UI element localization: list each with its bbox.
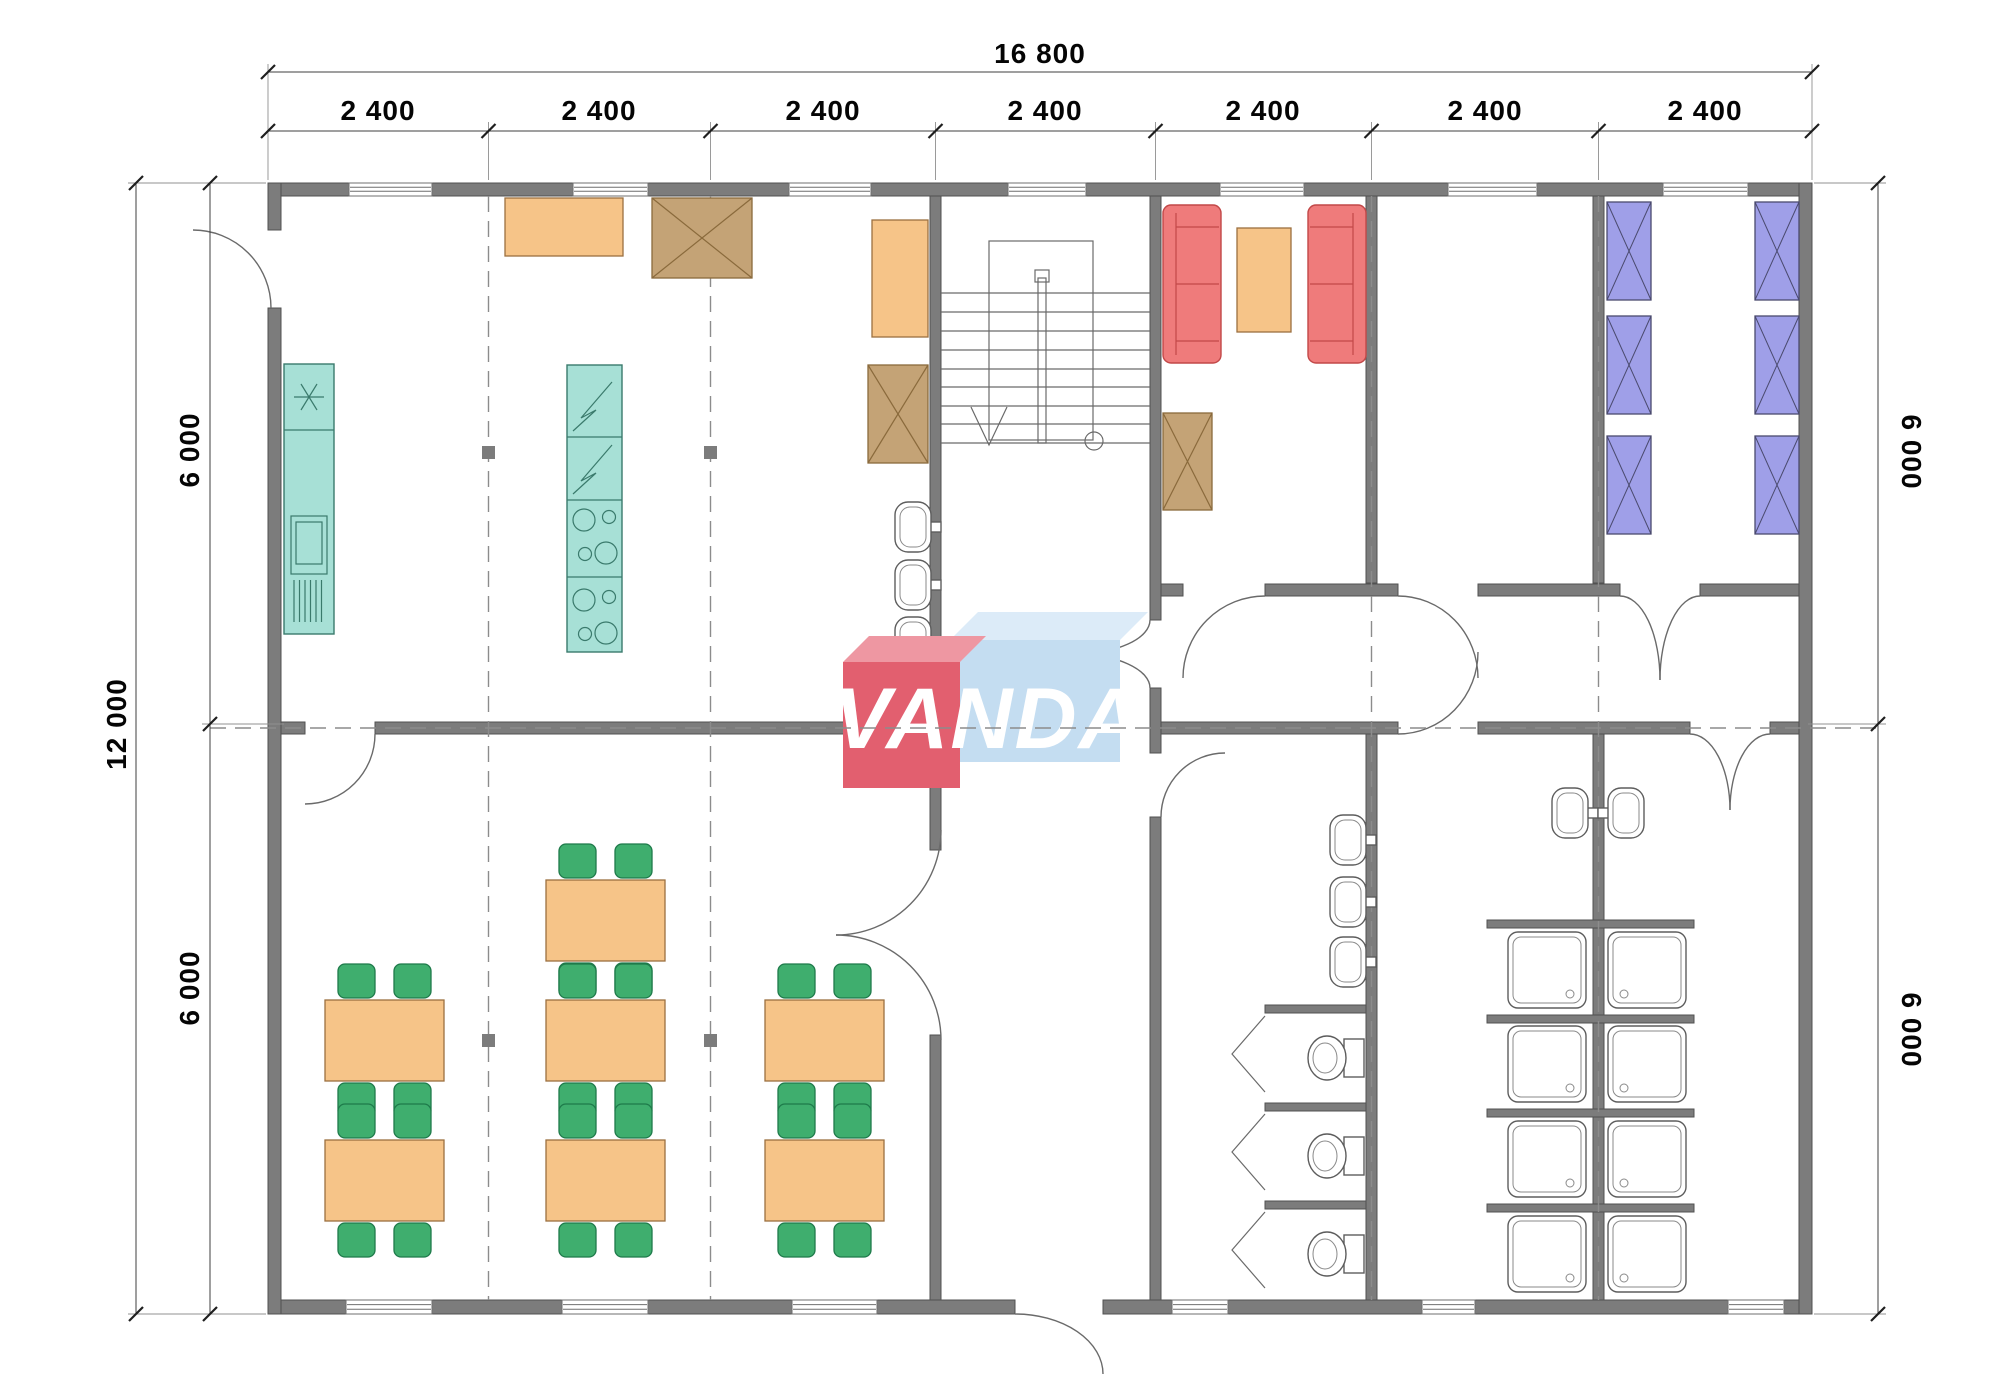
staircase [941, 241, 1150, 450]
dim-total-width: 16 800 [994, 38, 1086, 69]
shower-icon [1508, 1026, 1586, 1102]
shower-icon [1508, 932, 1586, 1008]
sofa-icon [1163, 205, 1221, 363]
dining-set-icon [325, 964, 444, 1117]
shower-icon [1608, 1026, 1686, 1102]
logo-blue-top-face [950, 612, 1148, 640]
window [1172, 1300, 1228, 1314]
dining-set-icon [546, 1104, 665, 1257]
stall-door [1232, 1016, 1265, 1092]
door-arc-lounge [1183, 596, 1265, 678]
door-arc-dining [305, 734, 375, 804]
vanda-logo: VANDA [833, 612, 1148, 788]
wardrobe-icon [652, 198, 752, 278]
dim-segment: 2 400 [561, 95, 636, 126]
dining-set-icon [546, 964, 665, 1117]
window [346, 1300, 432, 1314]
door-arc-bedroom-1 [1620, 596, 1660, 680]
kitchen-fixtures [284, 364, 941, 667]
stair-rail [1038, 278, 1046, 443]
bed-icon [1755, 436, 1799, 534]
fridge-counter-unit [284, 364, 334, 634]
toilet-icon [1308, 1232, 1364, 1276]
dim-segment: 6 000 [1896, 992, 1927, 1067]
door-arc-kitchen-entry [193, 230, 271, 308]
toilet-icon [1308, 1036, 1364, 1080]
module-joint-marker [704, 446, 717, 459]
door-arc-washroom [1161, 753, 1225, 817]
door-arc-bedroom-2 [1660, 596, 1700, 680]
window [792, 1300, 877, 1314]
bed-icon [1755, 202, 1799, 300]
dim-segment: 2 400 [340, 95, 415, 126]
shower-icon [1608, 932, 1686, 1008]
logo-text: VANDA [833, 671, 1142, 767]
floor-plan-drawing: VANDA 16 800 2 400 [0, 0, 2000, 1380]
bed-icon [1755, 316, 1799, 414]
dining-set-icon [765, 1104, 884, 1257]
toilet-icon [1308, 1134, 1364, 1178]
floor-plan-page: VANDA 16 800 2 400 [0, 0, 2000, 1380]
bed-icon [1607, 202, 1651, 300]
dining-sets [325, 844, 884, 1257]
window [1728, 1300, 1784, 1314]
dim-segment: 6 000 [174, 412, 205, 487]
dim-segment: 2 400 [1667, 95, 1742, 126]
door-arc-shower-room [1398, 652, 1478, 734]
dim-segment: 6 000 [1896, 414, 1927, 489]
window [1663, 183, 1748, 196]
door-arc-middle-room [1398, 596, 1478, 678]
stair-path-start [1085, 432, 1103, 450]
dim-total-height: 12 000 [101, 678, 132, 770]
shower-icon [1608, 1216, 1686, 1292]
sink-icon [1598, 788, 1644, 838]
cooker-unit [567, 365, 622, 652]
dim-segment: 2 400 [1447, 95, 1522, 126]
wardrobe-icon [868, 365, 928, 463]
stall-door [1232, 1114, 1265, 1190]
bedroom-beds [1607, 202, 1799, 534]
sink-icon [1552, 788, 1598, 838]
shower-icon [1508, 1121, 1586, 1197]
door-arc-washing-1 [1690, 734, 1730, 810]
module-joint-marker [482, 1034, 495, 1047]
dining-set-icon [765, 964, 884, 1117]
dim-segment: 2 400 [1225, 95, 1300, 126]
window [1008, 183, 1086, 196]
window [573, 183, 648, 196]
bed-icon [1607, 316, 1651, 414]
sanitary-fixtures [1308, 788, 1686, 1292]
module-joint-marker [482, 446, 495, 459]
dim-segment: 2 400 [785, 95, 860, 126]
shower-icon [1508, 1216, 1586, 1292]
wardrobe-icon [1163, 413, 1212, 510]
window [562, 1300, 648, 1314]
dim-segment: 6 000 [174, 950, 205, 1025]
stall-door [1232, 1212, 1265, 1288]
window [1220, 183, 1304, 196]
dining-set-icon [325, 1104, 444, 1257]
window [1448, 183, 1537, 196]
door-arc-dining-double-1 [836, 830, 941, 935]
window [1422, 1300, 1475, 1314]
window [789, 183, 871, 196]
door-arc-washing-2 [1730, 734, 1770, 810]
window [349, 183, 432, 196]
dim-segment: 2 400 [1007, 95, 1082, 126]
shower-icon [1608, 1121, 1686, 1197]
sofa-icon [1308, 205, 1366, 363]
module-joint-marker [704, 1034, 717, 1047]
kitchen-table [505, 198, 623, 256]
coffee-table [1237, 228, 1291, 332]
bed-icon [1607, 436, 1651, 534]
door-arc-main-entrance [1015, 1314, 1103, 1374]
side-table [872, 220, 928, 337]
